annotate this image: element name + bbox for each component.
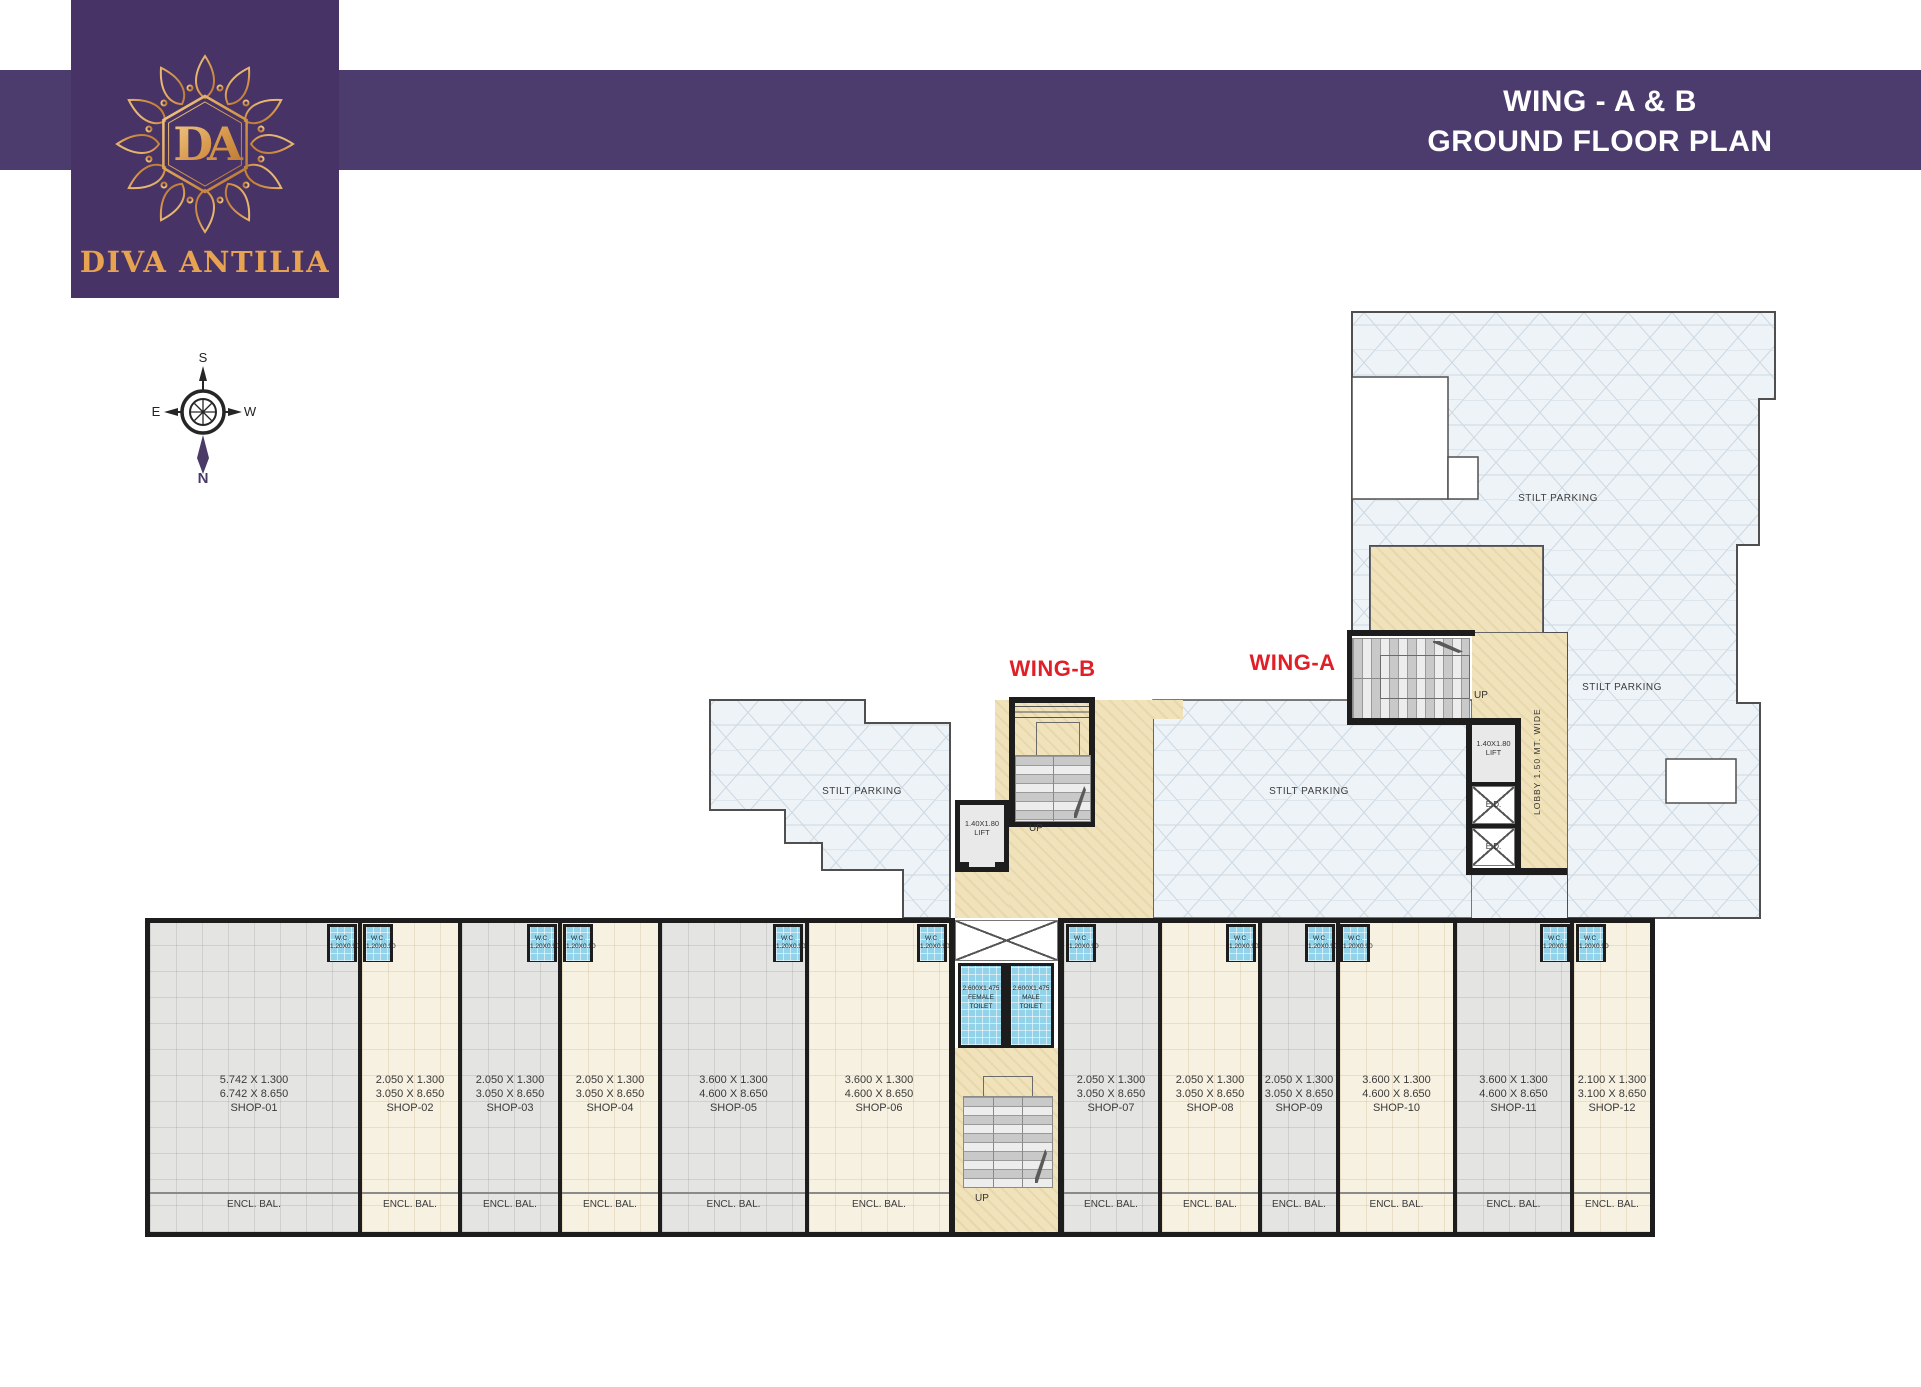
wall bbox=[658, 918, 662, 1237]
shop-label: 2.050 X 1.3003.050 X 8.650SHOP-08 bbox=[1162, 1073, 1258, 1115]
wc-cubicle: W.C.1.20X0.90 bbox=[1305, 924, 1335, 962]
toilet-dim: 2.600X1.475 bbox=[1011, 984, 1051, 993]
duct-label: E.D. bbox=[1473, 842, 1514, 851]
stilt-parking-label: STILT PARKING bbox=[1239, 786, 1379, 797]
shop-label: 3.600 X 1.3004.600 X 8.650SHOP-05 bbox=[662, 1073, 805, 1115]
wc-cubicle: W.C.1.20X0.90 bbox=[363, 924, 393, 962]
balcony-label: ENCL. BAL. bbox=[362, 1199, 458, 1210]
balcony-label: ENCL. BAL. bbox=[662, 1199, 805, 1210]
shop-unit: 2.050 X 1.3003.050 X 8.650SHOP-02 ENCL. … bbox=[362, 923, 458, 1232]
stair-landing-outline bbox=[983, 1076, 1033, 1098]
wall bbox=[1347, 718, 1521, 725]
wingb-stairs bbox=[1015, 755, 1091, 822]
wall bbox=[1570, 918, 1574, 1237]
wingb-label: WING-B bbox=[990, 656, 1115, 682]
wall bbox=[145, 1232, 1655, 1237]
winga-lift: 1.40X1.80 LIFT bbox=[1472, 725, 1515, 782]
entrance-door-box bbox=[955, 920, 1058, 961]
wingb-lobby-strip bbox=[1153, 700, 1183, 719]
stair-up-arrow bbox=[1433, 641, 1463, 653]
central-stairs bbox=[963, 1096, 1053, 1188]
shop-unit: 2.050 X 1.3003.050 X 8.650SHOP-03 ENCL. … bbox=[462, 923, 558, 1232]
shop-label: 2.050 X 1.3003.050 X 8.650SHOP-03 bbox=[462, 1073, 558, 1115]
shop-label: 3.600 X 1.3004.600 X 8.650SHOP-06 bbox=[809, 1073, 949, 1115]
balcony-label: ENCL. BAL. bbox=[1064, 1199, 1158, 1210]
stair-up-arrow bbox=[1074, 786, 1086, 818]
shop-unit: 2.100 X 1.3003.100 X 8.650SHOP-12 ENCL. … bbox=[1574, 923, 1650, 1232]
shop-unit: 3.600 X 1.3004.600 X 8.650SHOP-10 ENCL. … bbox=[1340, 923, 1453, 1232]
wc-cubicle: W.C.1.20X0.90 bbox=[1576, 924, 1606, 962]
stilt-parking-strip bbox=[1472, 875, 1567, 918]
toilet-label: TOILET bbox=[1011, 1002, 1051, 1011]
wall bbox=[1650, 918, 1655, 1237]
wc-cubicle: W.C.1.20X0.90 bbox=[527, 924, 557, 962]
parking-notch bbox=[1666, 759, 1736, 803]
central-core: 2.600X1.475 FEMALE TOILET 2.600X1.475 MA… bbox=[949, 918, 1064, 1237]
wc-cubicle: W.C.1.20X0.90 bbox=[327, 924, 357, 962]
wc-cubicle: W.C.1.20X0.90 bbox=[563, 924, 593, 962]
shop-label: 2.100 X 1.3003.100 X 8.650SHOP-12 bbox=[1574, 1073, 1650, 1115]
wall bbox=[1515, 718, 1521, 868]
balcony-label: ENCL. BAL. bbox=[1262, 1199, 1336, 1210]
wall bbox=[1058, 918, 1655, 923]
lift-dim-label: 1.40X1.80 bbox=[960, 819, 1004, 828]
shop-unit: 5.742 X 1.3006.742 X 8.650SHOP-01 ENCL. … bbox=[150, 923, 358, 1232]
wall bbox=[1009, 697, 1095, 703]
shop-unit: 2.050 X 1.3003.050 X 8.650SHOP-08 ENCL. … bbox=[1162, 923, 1258, 1232]
balcony-divider bbox=[150, 1192, 949, 1194]
lift-door-nub bbox=[995, 862, 1004, 868]
duct-label: E.D. bbox=[1473, 800, 1514, 809]
wall bbox=[558, 918, 562, 1237]
wall bbox=[1058, 918, 1064, 1237]
winga-up-label: UP bbox=[1474, 690, 1504, 701]
wall bbox=[145, 918, 955, 923]
toilet-label: TOILET bbox=[961, 1002, 1001, 1011]
wall bbox=[458, 918, 462, 1237]
stair-up-arrow bbox=[1035, 1149, 1047, 1183]
wc-cubicle: W.C.1.20X0.90 bbox=[917, 924, 947, 962]
shop-label: 3.600 X 1.3004.600 X 8.650SHOP-10 bbox=[1340, 1073, 1453, 1115]
stilt-parking-area-wingb bbox=[710, 700, 950, 918]
shop-label: 3.600 X 1.3004.600 X 8.650SHOP-11 bbox=[1457, 1073, 1570, 1115]
balcony-label: ENCL. BAL. bbox=[150, 1199, 358, 1210]
wingb-lobby-lower bbox=[955, 871, 1009, 918]
balcony-label: ENCL. BAL. bbox=[462, 1199, 558, 1210]
shop-unit: 3.600 X 1.3004.600 X 8.650SHOP-06 ENCL. … bbox=[809, 923, 949, 1232]
wall bbox=[805, 918, 809, 1237]
female-toilet: 2.600X1.475 FEMALE TOILET bbox=[958, 963, 1004, 1048]
male-toilet: 2.600X1.475 MALE TOILET bbox=[1008, 963, 1054, 1048]
wall bbox=[949, 918, 955, 1237]
wingb-up-label: UP bbox=[1016, 823, 1056, 834]
lobby-width-label: LOBBY 1.50 MT. WIDE bbox=[1532, 682, 1550, 842]
stilt-parking-label: STILT PARKING bbox=[1552, 682, 1692, 693]
lift-label: LIFT bbox=[1472, 748, 1515, 757]
brochure-page: DA DIVA ANTILIA WING - A & B GROUND FLOO… bbox=[0, 0, 1921, 1387]
stair-divider bbox=[1022, 1097, 1023, 1187]
parking-notch bbox=[1448, 457, 1478, 499]
wall bbox=[145, 918, 150, 1237]
wall bbox=[1466, 868, 1567, 875]
balcony-label: ENCL. BAL. bbox=[1340, 1199, 1453, 1210]
wall bbox=[1258, 918, 1262, 1237]
balcony-divider bbox=[1064, 1192, 1650, 1194]
wc-cubicle: W.C.1.20X0.90 bbox=[1340, 924, 1370, 962]
shop-label: 2.050 X 1.3003.050 X 8.650SHOP-02 bbox=[362, 1073, 458, 1115]
stilt-parking-label: STILT PARKING bbox=[1488, 493, 1628, 504]
parking-notch bbox=[1352, 377, 1448, 499]
winga-stair-core: 1.40X1.80 LIFT E.D. E.D. bbox=[1347, 630, 1521, 875]
balcony-label: ENCL. BAL. bbox=[1457, 1199, 1570, 1210]
shop-label: 5.742 X 1.3006.742 X 8.650SHOP-01 bbox=[150, 1073, 358, 1115]
balcony-label: ENCL. BAL. bbox=[1162, 1199, 1258, 1210]
wc-cubicle: W.C.1.20X0.90 bbox=[1066, 924, 1096, 962]
central-up-label: UP bbox=[962, 1193, 1002, 1204]
shop-unit: 3.600 X 1.3004.600 X 8.650SHOP-11 ENCL. … bbox=[1457, 923, 1570, 1232]
electrical-duct: E.D. bbox=[1472, 828, 1515, 866]
wall bbox=[358, 918, 362, 1237]
wall bbox=[1453, 918, 1457, 1237]
shop-label: 2.050 X 1.3003.050 X 8.650SHOP-07 bbox=[1064, 1073, 1158, 1115]
toilet-label: FEMALE bbox=[961, 993, 1001, 1002]
wall bbox=[1158, 918, 1162, 1237]
stair-divider bbox=[1053, 756, 1054, 821]
shop-unit: 3.600 X 1.3004.600 X 8.650SHOP-05 ENCL. … bbox=[662, 923, 805, 1232]
stair-head-lines bbox=[1015, 706, 1089, 718]
balcony-label: ENCL. BAL. bbox=[562, 1199, 658, 1210]
stair-landing-outline bbox=[1036, 722, 1080, 758]
shop-unit: 2.050 X 1.3003.050 X 8.650SHOP-09 ENCL. … bbox=[1262, 923, 1336, 1232]
lift-door-nub bbox=[960, 862, 969, 868]
balcony-label: ENCL. BAL. bbox=[1574, 1199, 1650, 1210]
shop-unit: 2.050 X 1.3003.050 X 8.650SHOP-07 ENCL. … bbox=[1064, 923, 1158, 1232]
wingb-lift: 1.40X1.80 LIFT bbox=[955, 800, 1009, 872]
wall bbox=[1004, 963, 1008, 1048]
wall bbox=[1336, 918, 1340, 1237]
stair-landing-outline bbox=[1380, 655, 1470, 699]
winga-label: WING-A bbox=[1230, 650, 1355, 676]
toilet-dim: 2.600X1.475 bbox=[961, 984, 1001, 993]
shop-label: 2.050 X 1.3003.050 X 8.650SHOP-09 bbox=[1262, 1073, 1336, 1115]
lift-dim-label: 1.40X1.80 bbox=[1472, 739, 1515, 748]
stilt-parking-label: STILT PARKING bbox=[792, 786, 932, 797]
lift-label: LIFT bbox=[960, 828, 1004, 837]
toilet-label: MALE bbox=[1011, 993, 1051, 1002]
wall bbox=[1347, 630, 1475, 636]
winga-lobby-top bbox=[1370, 546, 1543, 633]
shop-label: 2.050 X 1.3003.050 X 8.650SHOP-04 bbox=[562, 1073, 658, 1115]
wc-cubicle: W.C.1.20X0.90 bbox=[1226, 924, 1256, 962]
stair-divider bbox=[993, 1097, 994, 1187]
balcony-label: ENCL. BAL. bbox=[809, 1199, 949, 1210]
electrical-duct: E.D. bbox=[1472, 786, 1515, 824]
wc-cubicle: W.C.1.20X0.90 bbox=[773, 924, 803, 962]
wc-cubicle: W.C.1.20X0.90 bbox=[1540, 924, 1570, 962]
shop-unit: 2.050 X 1.3003.050 X 8.650SHOP-04 ENCL. … bbox=[562, 923, 658, 1232]
